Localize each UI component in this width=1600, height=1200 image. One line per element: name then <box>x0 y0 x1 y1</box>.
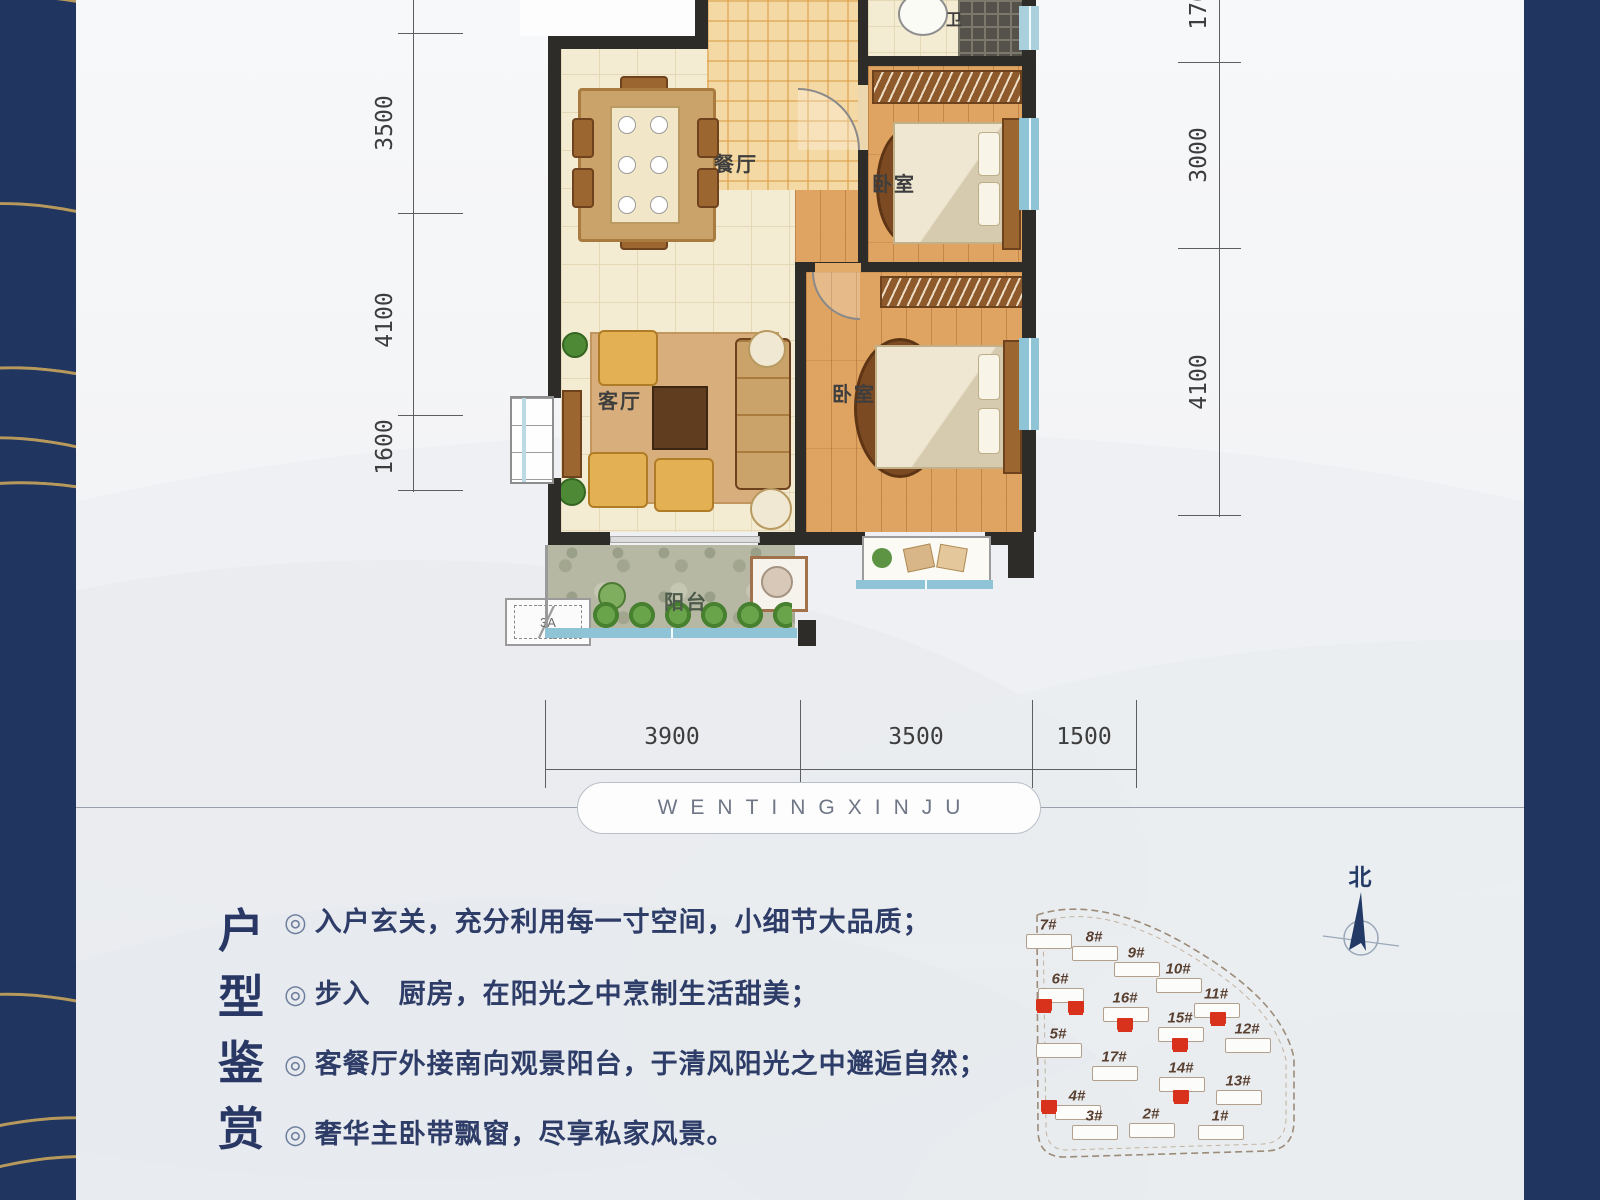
site-building-label: 7# <box>1040 917 1057 934</box>
site-building-label: 16# <box>1112 990 1137 1007</box>
site-building-label: 13# <box>1225 1073 1250 1090</box>
highlight-marker-icon <box>1041 1100 1057 1112</box>
site-building-footprint <box>1216 1090 1262 1105</box>
gold-arc <box>0 0 76 135</box>
site-building-label: 8# <box>1086 929 1103 946</box>
site-building-footprint <box>1198 1125 1244 1140</box>
site-building-footprint <box>1072 946 1118 961</box>
site-building-footprint <box>1026 934 1072 949</box>
north-indicator: 北 <box>1315 858 1405 968</box>
poster-page: 3A 餐厅 客厅 卧室 卧室 阳台 卫 <box>0 0 1600 1200</box>
site-building-footprint <box>1114 962 1160 977</box>
site-building-label: 17# <box>1101 1049 1126 1066</box>
highlight-marker-icon <box>1173 1090 1189 1102</box>
site-building-label: 6# <box>1052 971 1069 988</box>
site-building-footprint <box>1129 1123 1175 1138</box>
site-building-label: 3# <box>1086 1108 1103 1125</box>
north-arrow-icon <box>1315 858 1405 968</box>
highlight-marker-icon <box>1068 1001 1084 1013</box>
site-building-footprint <box>1225 1038 1271 1053</box>
highlight-marker-icon <box>1036 999 1052 1011</box>
site-building-footprint <box>1092 1066 1138 1081</box>
gold-arc <box>0 977 76 1139</box>
site-building-label: 5# <box>1050 1026 1067 1043</box>
site-building-footprint <box>1036 1043 1082 1058</box>
site-building-label: 9# <box>1128 945 1145 962</box>
site-building-label: 1# <box>1212 1108 1229 1125</box>
site-building-label: 14# <box>1168 1060 1193 1077</box>
highlight-marker-icon <box>1210 1012 1226 1024</box>
site-buildings: 7#8#9#10#11#6#16#15#12#5#17#14#13#4#3#2#… <box>0 0 1600 1200</box>
right-border-band <box>1524 0 1600 1200</box>
site-building-label: 10# <box>1165 961 1190 978</box>
highlight-marker-icon <box>1172 1038 1188 1050</box>
site-building-label: 12# <box>1234 1021 1259 1038</box>
site-building-label: 15# <box>1167 1010 1192 1027</box>
site-building-label: 11# <box>1204 986 1228 1003</box>
left-border-band <box>0 0 76 1200</box>
gold-arc <box>0 471 76 618</box>
site-building-label: 4# <box>1069 1088 1086 1105</box>
site-building-label: 2# <box>1143 1106 1160 1123</box>
highlight-marker-icon <box>1117 1018 1133 1030</box>
site-building-footprint <box>1072 1125 1118 1140</box>
site-building-footprint <box>1156 978 1202 993</box>
gold-arc <box>0 184 76 351</box>
